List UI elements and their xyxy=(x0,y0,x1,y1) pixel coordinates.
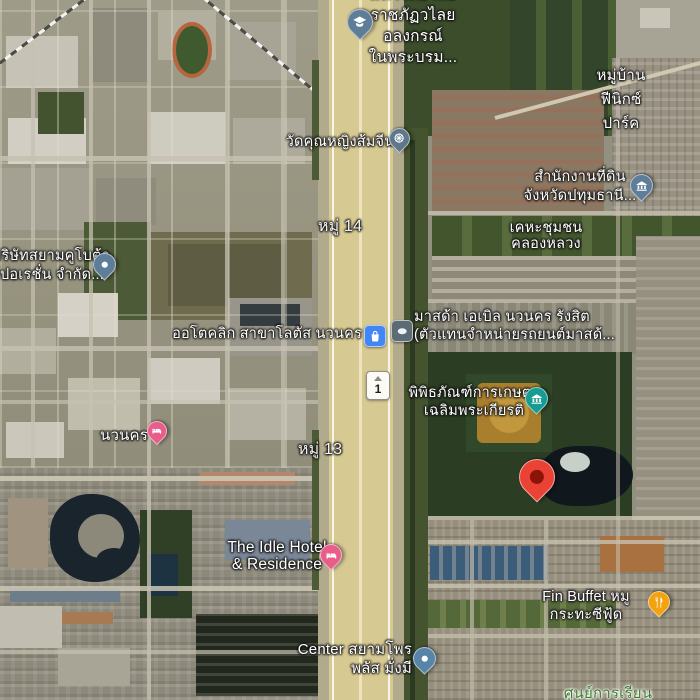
car-logo-icon xyxy=(395,324,409,338)
destination-marker-pin[interactable] xyxy=(519,459,555,495)
wat-khunying-somchin-pin[interactable] xyxy=(389,128,410,149)
siam-kubota-corporation-pin[interactable] xyxy=(93,253,116,276)
mazda-able-navanakorn-rangsit-pin[interactable] xyxy=(391,320,413,342)
place-dot-icon xyxy=(417,651,430,664)
poi-label-khlong-luang-community[interactable]: เคหะชุมชนคลองหลวง xyxy=(510,220,583,252)
idle-hotel-residence-pin[interactable] xyxy=(320,544,342,566)
poi-fin-buffet-mookata-seafood: Fin Buffet หมูกระทะซีฟู้ด xyxy=(0,0,700,700)
highway-crest-icon xyxy=(374,376,382,381)
navanakorn-hotel-pin[interactable] xyxy=(147,421,167,441)
route-number: 1 xyxy=(375,383,382,395)
satellite-map-canvas[interactable]: 1 มหาวิทยาลัยราชภัฏวไลยอลงกรณ์ในพระบรม..… xyxy=(0,0,700,700)
poi-label-pathum-thani-land-office[interactable]: สำนักงานที่ดินจังหวัดปทุมธานี... xyxy=(524,168,637,206)
autoclick-lotus-navanakorn-pin[interactable] xyxy=(364,325,386,347)
marker-inner-dot xyxy=(530,470,544,484)
poi-label-moo-14[interactable]: หมู่ 14 xyxy=(318,218,362,236)
restaurant-icon xyxy=(653,596,666,609)
fin-buffet-mookata-seafood-pin[interactable] xyxy=(648,591,670,613)
route-1-shield[interactable]: 1 xyxy=(366,371,390,400)
dharma-wheel-icon xyxy=(393,132,405,144)
poi-label-phoenix-park-village[interactable]: หมู่บ้านฟีนิกซ์ปาร์ค xyxy=(597,64,646,136)
poi-label-learning-center[interactable]: ศูนย์การเรียน xyxy=(564,685,652,700)
hotel-bed-icon xyxy=(151,425,163,437)
place-dot-icon xyxy=(97,257,110,270)
museum-icon xyxy=(529,391,542,404)
university-pin[interactable] xyxy=(347,9,373,35)
graduation-cap-icon xyxy=(352,14,367,29)
center-siam-pro-plus-mangmee-pin[interactable] xyxy=(413,647,436,670)
poi-label-mazda-able-navanakorn-rangsit[interactable]: มาสด้า เอเบิล นวนคร รังสิต(ตัวแทนจำหน่าย… xyxy=(414,309,615,344)
government-building-icon xyxy=(634,178,647,191)
agricultural-museum-pin[interactable] xyxy=(525,387,548,410)
poi-label-agricultural-museum[interactable]: พิพิธภัณฑ์การเกษตรเฉลิมพระเกียรติ xyxy=(408,384,539,420)
poi-label-autoclick-lotus-navanakorn[interactable]: ออโตคลิก สาขาโลตัส นวนคร xyxy=(172,326,362,343)
poi-layer: มหาวิทยาลัยราชภัฏวไลยอลงกรณ์ในพระบรม...ว… xyxy=(0,0,700,700)
poi-label-moo-13[interactable]: หมู่ 13 xyxy=(298,441,342,459)
poi-label-idle-hotel-residence[interactable]: The Idle Hotel& Residence xyxy=(227,539,326,573)
hotel-bed-icon xyxy=(325,549,338,562)
poi-label-center-siam-pro-plus-mangmee[interactable]: Center สยามโพรพลัส มั่งมี xyxy=(298,640,412,678)
pathum-thani-land-office-pin[interactable] xyxy=(630,174,653,197)
poi-label-university[interactable]: มหาวิทยาลัยราชภัฏวไลยอลงกรณ์ในพระบรม... xyxy=(369,0,458,68)
shopping-bag-icon xyxy=(368,329,382,343)
poi-label-fin-buffet-mookata-seafood[interactable]: Fin Buffet หมูกระทะซีฟู้ด xyxy=(542,588,630,624)
poi-label-navanakorn-hotel[interactable]: นวนคร xyxy=(100,427,148,444)
poi-label-wat-khunying-somchin[interactable]: วัดคุณหญิงส้มจีน xyxy=(286,134,395,151)
